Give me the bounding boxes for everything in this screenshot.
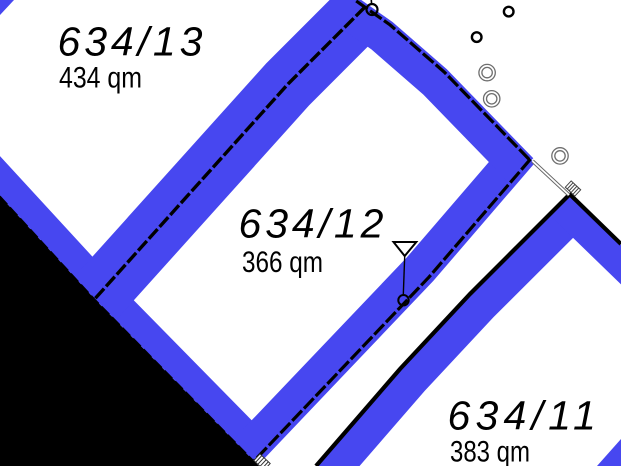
svg-text:383 qm: 383 qm: [450, 435, 530, 466]
svg-text:634/11: 634/11: [448, 393, 602, 439]
svg-text:634/13: 634/13: [58, 19, 207, 65]
svg-text:634/12: 634/12: [239, 201, 388, 247]
svg-text:434 qm: 434 qm: [59, 62, 142, 95]
svg-text:366 qm: 366 qm: [242, 246, 323, 279]
